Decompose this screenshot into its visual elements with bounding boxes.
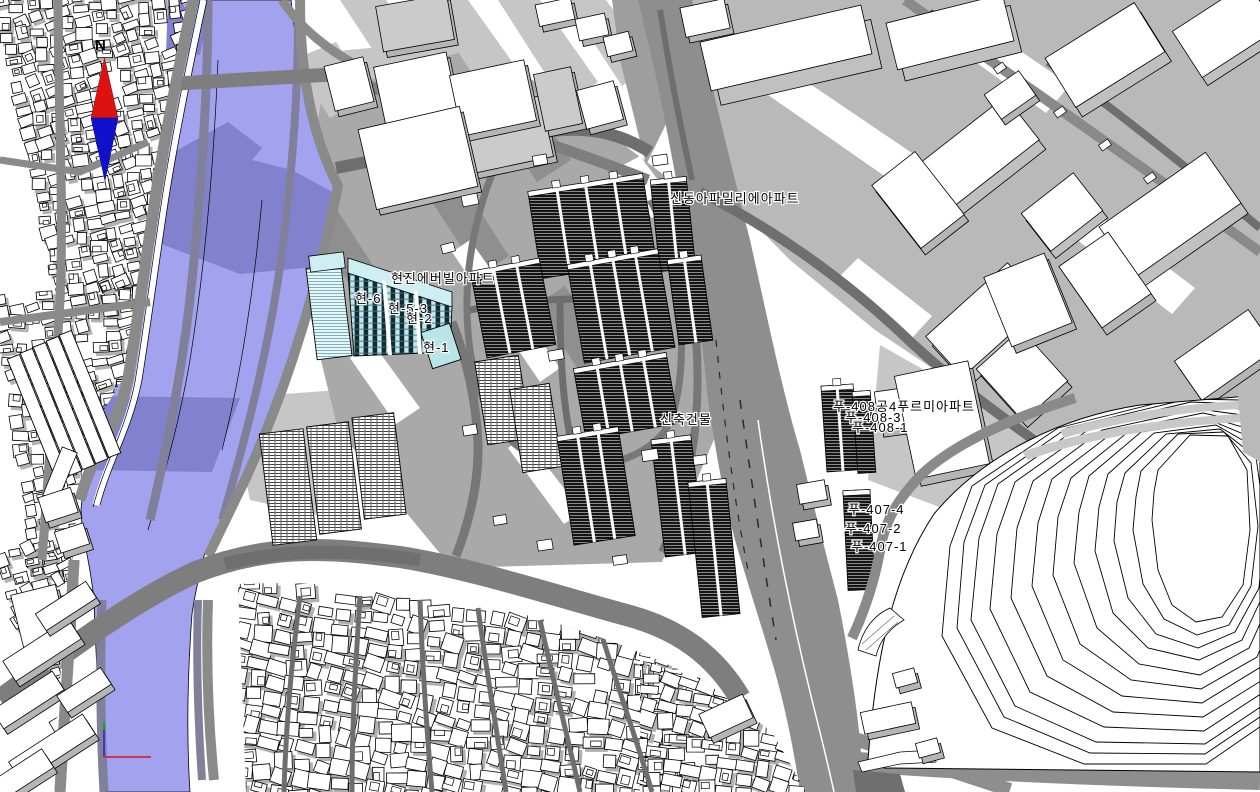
svg-text:현진에버빌아파트: 현진에버빌아파트 (391, 271, 495, 286)
svg-text:현-1: 현-1 (423, 340, 450, 355)
svg-text:신축건물: 신축건물 (660, 412, 712, 427)
svg-text:푸-407-2: 푸-407-2 (845, 521, 902, 536)
svg-text:푸-408-1: 푸-408-1 (852, 420, 909, 435)
svg-text:신동아파밀리에아파트: 신동아파밀리에아파트 (670, 191, 800, 206)
svg-text:현-6: 현-6 (355, 291, 382, 306)
svg-text:푸-407-4: 푸-407-4 (848, 502, 905, 517)
svg-text:푸-407-1: 푸-407-1 (851, 539, 908, 554)
svg-text:현-2: 현-2 (406, 311, 433, 326)
svg-text:N: N (95, 37, 106, 54)
